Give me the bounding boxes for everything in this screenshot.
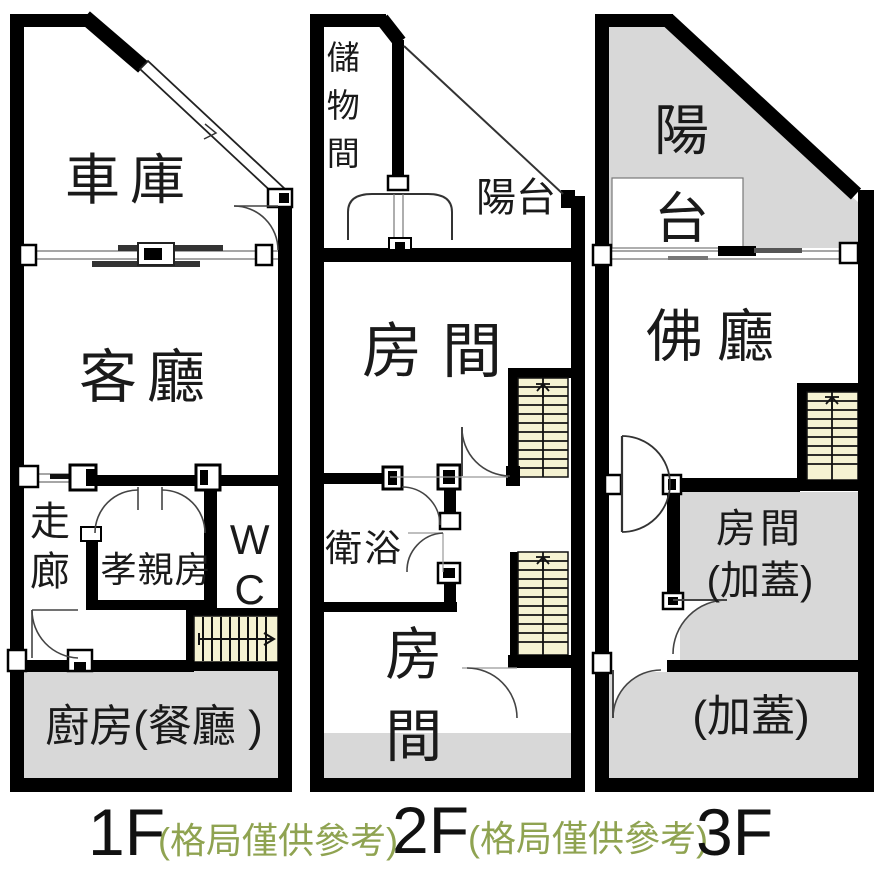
floor-plan-image: 車庫 客廳 走廊 孝親房 WC 廚房(餐廳 ) 儲物間 陽台 房間 衛浴 房間 … [0,0,889,874]
room-label-wc: WC [226,516,272,616]
room-label-room-3f-suffix: (加蓋) [698,560,822,602]
room-label-buddha-hall: 佛廳 [644,308,790,368]
room-label-bath: 衛浴 [324,530,404,569]
caption-note-2f: (格局僅供參考) [468,810,708,862]
room-label-balcony-3f: 陽台 [646,101,707,277]
room-label-garage: 車庫 [62,152,198,210]
room-label-balcony-2f: 陽台 [474,177,558,219]
room-label-living: 客廳 [76,348,218,409]
room-label-annex: (加蓋) [686,694,816,740]
door-arcs-parents-room [95,487,205,533]
corner-wall-2f [382,19,400,42]
stairs-1f-icon [186,608,292,662]
room-label-kitchen: 廚房(餐廳 ) [26,704,282,750]
room-label-room-3f: 房間 [712,508,808,550]
room-label-back-room-2f: 房間 [377,624,440,788]
stairs-3f-icon [797,383,858,480]
arch-door-2f [348,176,452,250]
room-label-corridor: 走廊 [24,500,68,600]
door-arc-garage-living [234,206,278,250]
caption-note-1f: (格局僅供參考) [158,812,398,864]
room-label-parents-room: 孝親房 [96,551,216,589]
caption-2f: 2F [392,792,469,868]
balcony-edge-line-2f [404,46,563,194]
caption-3f: 3F [696,794,773,870]
room-label-front-room-2f: 房間 [356,320,528,383]
sliding-door-1f [20,243,278,267]
floor-3f-drawing [593,14,874,792]
room-label-storage: 儲物間 [322,40,358,184]
caption-1f: 1F [88,794,165,870]
diagonal-wall-1f [85,17,143,67]
gray-strip-2f [324,733,571,778]
